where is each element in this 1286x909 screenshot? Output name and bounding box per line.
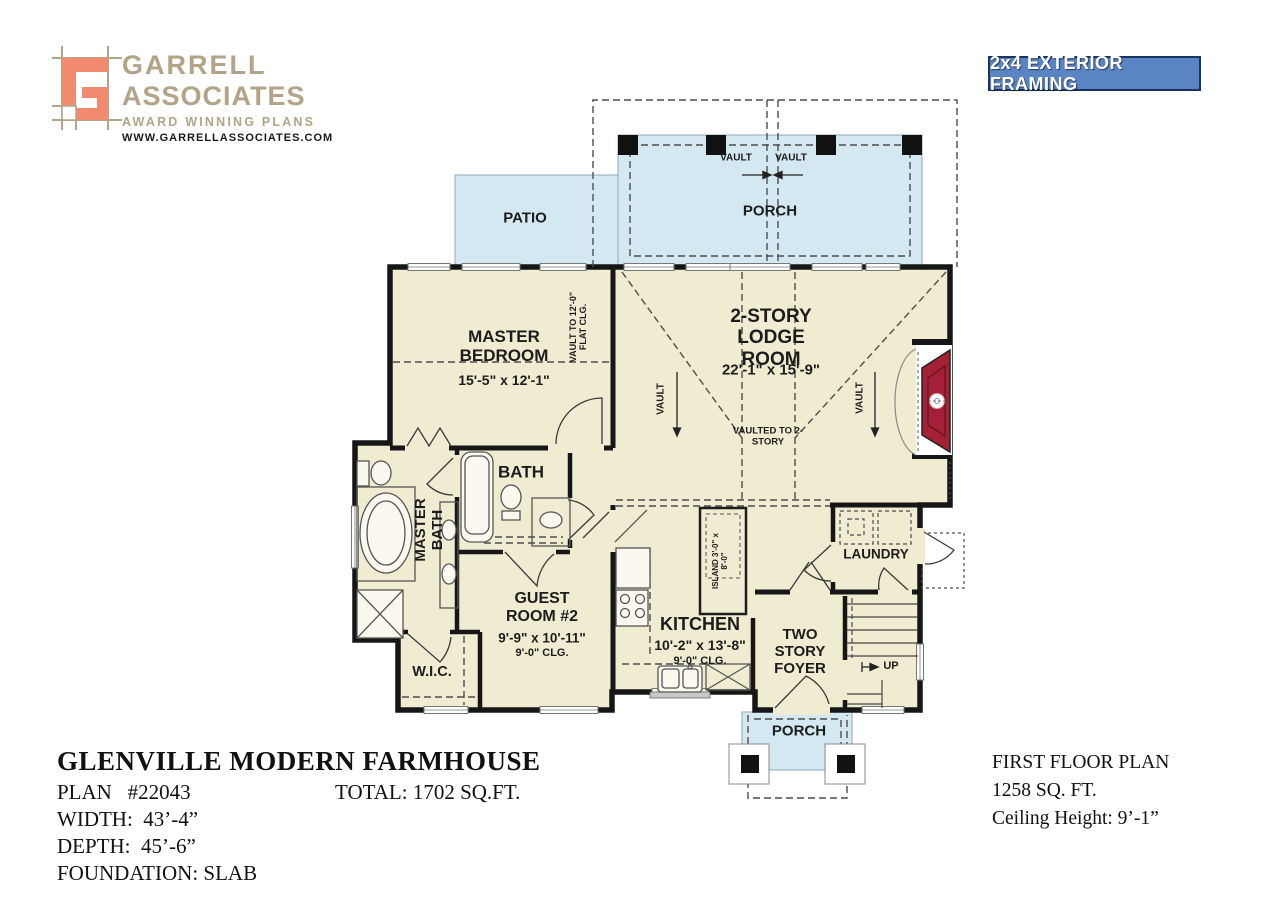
- rear-porch-area: [618, 135, 922, 268]
- vault-flat-ceiling-note: VAULT TO 12'-0" FLAT CLG.: [568, 284, 588, 370]
- fireplace: [895, 345, 952, 455]
- floor-info-title: FIRST FLOOR PLAN: [992, 752, 1169, 774]
- room-label-laundry: LAUNDRY: [843, 546, 909, 561]
- vaulted-two-story-note: VAULTED TO 2-STORY: [732, 426, 804, 447]
- bathtub: [360, 493, 412, 573]
- room-ceiling-kitchen: 9'-0" CLG.: [673, 655, 726, 667]
- plan-foundation: FOUNDATION: SLAB: [57, 861, 257, 886]
- room-label-lodge-room: 2-STORY LODGE ROOM: [708, 306, 834, 370]
- room-label-patio: PATIO: [503, 211, 547, 228]
- room-label-foyer: TWO STORY FOYER: [769, 627, 831, 677]
- stairs-up-label: UP: [883, 660, 898, 672]
- room-dims-kitchen: 10'-2" x 13'-8": [654, 638, 746, 654]
- room-label-bath: BATH: [498, 462, 544, 481]
- room-dims-lodge-room: 22'-1" x 15'-9": [722, 363, 820, 380]
- vault-label-porch-left: VAULT: [720, 152, 752, 163]
- plan-number: PLAN #22043: [57, 780, 191, 805]
- room-label-kitchen: KITCHEN: [660, 614, 740, 634]
- kitchen-window-sill: [650, 692, 710, 698]
- toilet: [357, 461, 369, 486]
- plan-width: WIDTH: 43’-4”: [57, 807, 198, 832]
- room-label-porch-rear: PORCH: [743, 204, 797, 221]
- room-dims-guest-room: 9'-9" x 10'-11": [498, 630, 586, 645]
- room-label-guest-room: GUEST ROOM #2: [496, 590, 588, 626]
- island-label: ISLAND 3'-0" x 8'-0": [712, 532, 730, 590]
- vault-label-right: VAULT: [854, 382, 865, 414]
- room-ceiling-guest-room: 9'-0" CLG.: [515, 647, 568, 659]
- floor-info-sqft: 1258 SQ. FT.: [992, 780, 1097, 802]
- vault-label-left: VAULT: [655, 383, 666, 415]
- floor-info-ceiling: Ceiling Height: 9’-1”: [992, 808, 1159, 830]
- plan-total-sqft: TOTAL: 1702 SQ.FT.: [335, 780, 520, 805]
- room-label-master-bath: MASTER BATH: [413, 490, 447, 570]
- room-label-porch-front: PORCH: [772, 724, 826, 741]
- plan-depth: DEPTH: 45’-6”: [57, 834, 196, 859]
- plan-title: GLENVILLE MODERN FARMHOUSE: [57, 746, 541, 777]
- refrigerator: [616, 548, 650, 588]
- floor-plan-sheet: GARRELL ASSOCIATES AWARD WINNING PLANS W…: [0, 0, 1286, 909]
- room-label-wic: W.I.C.: [412, 664, 451, 680]
- toilet: [501, 485, 521, 509]
- vault-label-porch-right: VAULT: [775, 152, 807, 163]
- room-label-master-bedroom: MASTER BEDROOM: [454, 327, 554, 365]
- room-dims-master-bedroom: 15'-5" x 12'-1": [458, 373, 550, 389]
